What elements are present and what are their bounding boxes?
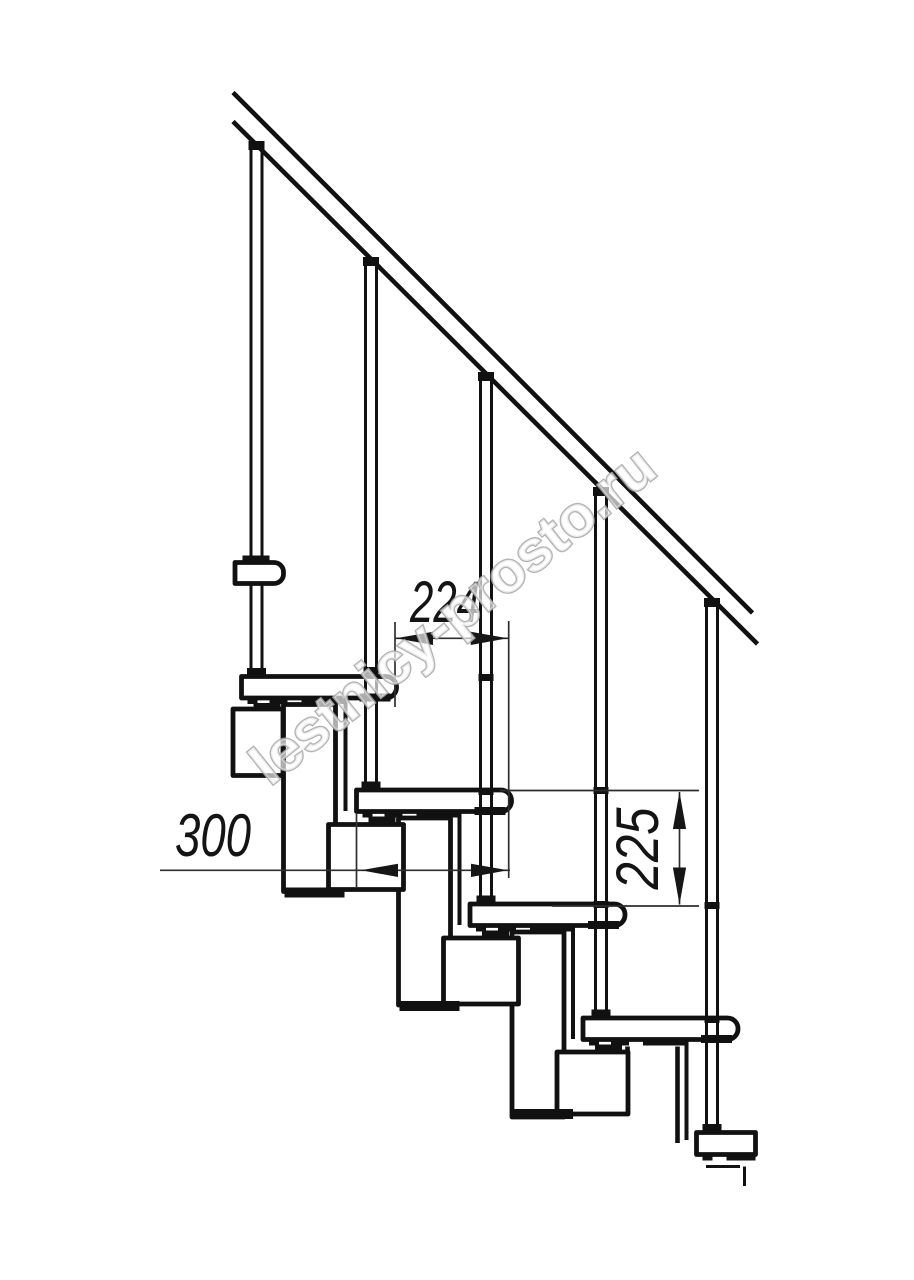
baluster-1-bottom-connector xyxy=(247,668,266,677)
baluster-3-collar-lower xyxy=(479,788,494,795)
tread-4-clamp xyxy=(595,1045,622,1052)
dimension-tread-depth-label: 300 xyxy=(175,802,251,869)
staircase-technical-drawing: 224 300 225 lestnicy-prosto.ru xyxy=(0,0,914,1280)
module-clamp-3 xyxy=(513,1109,573,1119)
dimension-rise-label: 225 xyxy=(604,807,671,890)
handrail-end-profile xyxy=(235,563,284,584)
tread-5-truncated xyxy=(697,1133,756,1155)
module-cube-3 xyxy=(557,1052,628,1114)
tread-2-clamp xyxy=(369,817,396,824)
baluster-2-bottom-connector xyxy=(362,782,381,791)
baluster-4-collar-lower xyxy=(594,901,609,908)
baluster-4-bottom-connector xyxy=(592,1010,611,1019)
baluster-5-collar-lower xyxy=(705,1016,720,1023)
baluster-3-collar-upper xyxy=(479,674,494,681)
baluster-3-bottom-connector xyxy=(477,896,496,905)
baluster-5-collar-upper xyxy=(705,902,720,909)
handrail-end-connector xyxy=(243,556,270,564)
baluster-5-bottom-connector xyxy=(703,1124,722,1133)
tread-1-clamp xyxy=(254,703,281,710)
module-clamp-1 xyxy=(285,888,345,898)
module-cube-2 xyxy=(444,938,519,1004)
drawing-canvas: 224 300 225 lestnicy-prosto.ru xyxy=(0,0,914,1280)
module-cube-1 xyxy=(329,825,404,890)
module-clamp-2 xyxy=(400,1001,460,1011)
tread-3-clamp xyxy=(482,931,509,938)
